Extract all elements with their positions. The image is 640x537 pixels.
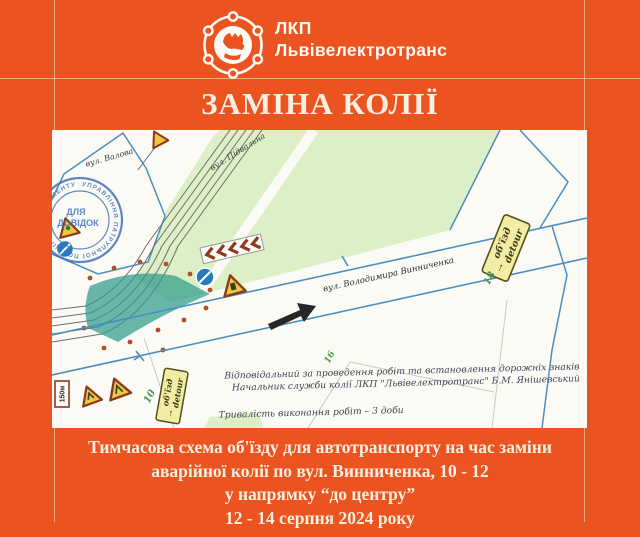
org-text: ЛКП Львівелектротранс — [275, 17, 447, 61]
stamp-line1: ДЛЯ — [66, 207, 85, 217]
caption-line-1: Тимчасова схема об'їзду для автотранспор… — [0, 436, 640, 460]
map-notes: Відповідальний за проведення робіт та вс… — [218, 361, 581, 420]
org-name: Львівелектротранс — [275, 39, 447, 61]
detour-sign-small: → об'їзд detour — [156, 368, 189, 424]
caption-line-2: аварійної колії по вул. Винниченка, 10 -… — [0, 460, 640, 484]
header-divider — [0, 78, 640, 79]
org-abbr: ЛКП — [275, 17, 447, 39]
warning-triangle-icon — [104, 375, 131, 400]
direction-arrow-icon — [268, 303, 316, 330]
distance-sign-label: 150м — [60, 386, 67, 403]
header: ЛКП Львівелектротранс — [0, 0, 640, 78]
no-stopping-sign-icon — [196, 268, 214, 286]
page-title: ЗАМІНА КОЛІЇ — [0, 86, 640, 122]
stamp-line2: ДОВІДОК — [57, 218, 99, 228]
warning-triangle-top-icon — [138, 130, 168, 170]
caption-line-3: у напрямку “до центру” — [0, 483, 640, 507]
caption: Тимчасова схема об'їзду для автотранспор… — [0, 436, 640, 530]
detour-arrow-icon: → — [164, 408, 175, 419]
note-duration: Тривалість виконання робіт – 3 доби — [219, 405, 404, 421]
caption-line-4: 12 - 14 серпня 2024 року — [0, 507, 640, 531]
building-number-10: 10 — [142, 388, 158, 405]
building-number-16: 16 — [323, 349, 338, 365]
poster: ЛКП Львівелектротранс ЗАМІНА КОЛІЇ — [0, 0, 640, 537]
logo-wheel-icon — [199, 11, 267, 79]
distance-sign: 150м — [55, 381, 69, 407]
warning-triangle-icon — [77, 383, 102, 406]
detour-map: → об'їзд detour → об'їзд detour 150м — [52, 130, 587, 428]
